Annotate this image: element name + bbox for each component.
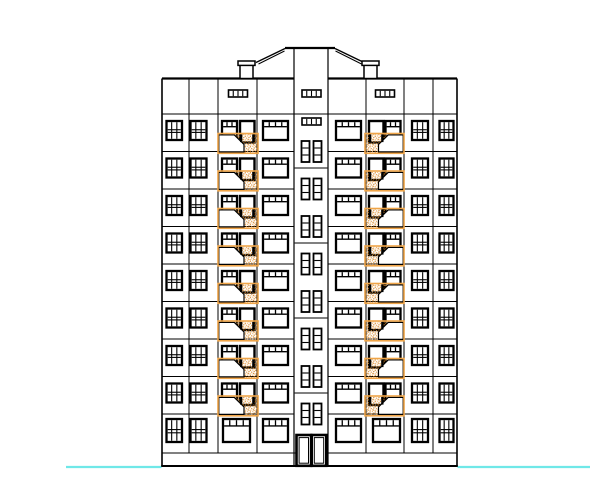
roof <box>238 48 379 79</box>
attic-vents <box>229 90 395 125</box>
stairwell-windows <box>302 141 322 425</box>
entrance-door <box>297 435 327 466</box>
building-elevation-svg <box>0 0 601 500</box>
drawing-canvas <box>0 0 601 500</box>
